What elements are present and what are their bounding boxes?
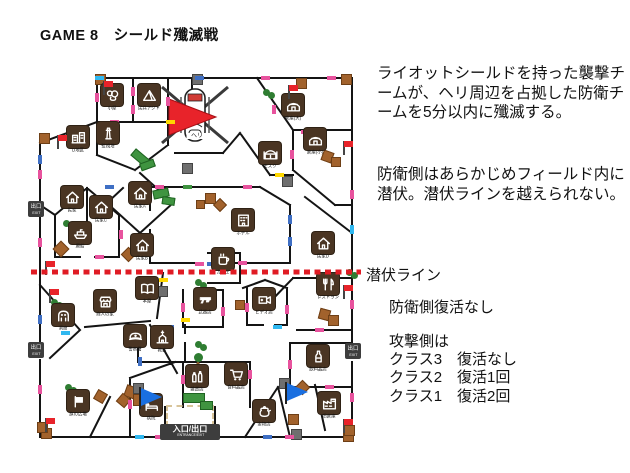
warehouse-icon: [304, 128, 326, 150]
map-icon-label: 民兵アジト: [137, 106, 161, 110]
red-flag-icon: [103, 81, 115, 95]
map-icon-house: 民家A: [118, 182, 162, 212]
map-icon-label: ホテル: [231, 231, 255, 235]
mosque-icon: [259, 142, 281, 164]
red-flag-icon: [343, 141, 355, 155]
red-flag-icon: [45, 261, 57, 275]
wall-marker: [275, 173, 284, 177]
red-flag-icon: [45, 418, 57, 432]
field-map: 小屋民兵アジト監視塔D地区民家民家C民家A倉庫(大)倉庫(小)モスクホテル民家D…: [35, 75, 357, 441]
red-flag-icon: [57, 135, 69, 149]
barrier-icon: [162, 196, 176, 206]
wall-marker: [243, 185, 252, 189]
map-icon-house: 民家B: [120, 234, 164, 264]
shop-icon: [94, 290, 116, 312]
map-icon-label: 雑貨店: [185, 387, 209, 391]
wall-marker: [166, 120, 175, 124]
tent-icon: [138, 84, 160, 106]
factory-icon: [318, 392, 340, 414]
red-flag-icon: [288, 85, 300, 99]
exit-sign: 出口EXIT: [345, 343, 361, 359]
city-icon: [67, 126, 89, 148]
map-icon-label: モスク: [258, 164, 282, 168]
red-flag-icon: [49, 289, 61, 303]
house-icon: [90, 196, 112, 218]
wall-marker: [285, 435, 294, 439]
crate-icon: [328, 315, 339, 326]
blue-pennant-icon: [139, 387, 165, 409]
page-title: GAME 8 シールド殲滅戦: [40, 24, 219, 45]
wall-marker: [38, 238, 42, 247]
map-icon-label: 民家B: [130, 256, 154, 260]
wall-marker: [138, 357, 142, 366]
map-icon-camera: ビデオ店: [242, 288, 286, 318]
map-icon-bottles: 雑貨店: [175, 365, 219, 395]
map-icon-label: 武器店: [193, 310, 217, 314]
map-icon-label: 洞窟: [51, 326, 75, 330]
bottle-icon: [307, 345, 329, 367]
wall-marker: [38, 170, 42, 179]
attack-rule-class2: クラス2 復活1回: [389, 369, 517, 387]
junction-block: [39, 133, 50, 144]
map-icon-label: ビデオ店: [252, 310, 276, 314]
map-icon-label: 教会: [150, 348, 174, 352]
map-icon-label: 小屋: [100, 106, 124, 110]
flagsq-icon: [67, 390, 89, 412]
map-icon-flagsq: 旗の広場: [56, 390, 100, 420]
map-icon-label: カフェ: [211, 270, 235, 274]
wall-marker: [38, 155, 42, 164]
map-icon-hotel: ホテル: [221, 209, 265, 239]
wall-marker: [181, 318, 190, 322]
map-icon-cart: 食料品店: [214, 363, 258, 393]
map-icon-label: 商人の家: [93, 312, 117, 316]
wall-marker: [95, 76, 104, 80]
wall-marker: [95, 255, 104, 259]
wall-marker: [195, 76, 204, 80]
map-icon-label: 飲料品店: [306, 367, 330, 371]
wall-marker: [315, 328, 324, 332]
blue-pennant-icon: [285, 382, 311, 404]
map-icon-teapot: 金物店: [242, 400, 286, 430]
ship-icon: [69, 222, 91, 244]
map-icon-label: 民家D: [311, 254, 335, 258]
wall-marker: [325, 385, 334, 389]
map-items-layer: 小屋民兵アジト監視塔D地区民家民家C民家A倉庫(大)倉庫(小)モスクホテル民家D…: [35, 75, 357, 441]
map-icon-mosque: モスク: [248, 142, 292, 172]
cart-icon: [225, 363, 247, 385]
wall-marker: [350, 300, 354, 309]
wall-marker: [350, 225, 354, 234]
attack-rule-class1: クラス1 復活2回: [389, 388, 517, 406]
crate-icon: [196, 200, 205, 209]
crate-icon: [331, 157, 341, 167]
house-icon: [312, 232, 334, 254]
tower-icon: [97, 122, 119, 144]
map-icon-label: 旗の広場: [66, 412, 90, 416]
map-icon-gun: 武器店: [183, 288, 227, 318]
map-icon-label: 本屋: [135, 299, 159, 303]
wall-marker: [327, 76, 336, 80]
wall-marker: [288, 237, 292, 246]
map-icon-label: 倉庫(小): [303, 150, 327, 154]
entrance-sign: 入口/出口ENTRANCE/EXIT: [160, 424, 220, 440]
barrier-icon: [200, 401, 213, 410]
church-icon: [151, 326, 173, 348]
map-icon-label: 旧倉庫: [317, 414, 341, 418]
crate-icon: [288, 414, 299, 425]
wall-marker: [288, 360, 292, 369]
wall-marker: [263, 435, 272, 439]
house-icon: [129, 182, 151, 204]
slide-page: { "title": "GAME 8 シールド殲滅戦", "rules": { …: [0, 0, 630, 473]
wall-marker: [288, 215, 292, 224]
map-icon-shop: 商人の家: [83, 290, 127, 320]
map-icon-label: 病院: [139, 416, 163, 420]
cup-icon: [212, 248, 234, 270]
wall-marker: [261, 76, 270, 80]
cutlery-icon: [317, 273, 339, 295]
map-icon-label: 廃船: [68, 244, 92, 248]
attack-rules-header: 攻撃側は: [389, 333, 517, 351]
rule-paragraph-defense: 防衛側はあらかじめフィールド内に潜伏。潜伏ラインを越えられない。: [377, 165, 629, 204]
wall-marker: [273, 325, 282, 329]
map-icon-ghost: 洞窟: [41, 304, 85, 334]
junction-block: [341, 74, 352, 85]
rule-paragraph-objective: ライオットシールドを持った襲撃チームが、ヘリ周辺を占拠した防衛チームを5分以内に…: [377, 64, 629, 123]
teapot-icon: [253, 400, 275, 422]
map-icon-label: 民家A: [128, 204, 152, 208]
map-icon-label: 食料品店: [224, 385, 248, 389]
wall-marker: [183, 185, 192, 189]
map-icon-church: 教会: [140, 326, 184, 356]
heli-label: ヘリ: [187, 133, 208, 139]
exit-sign: 出口EXIT: [28, 201, 44, 217]
map-icon-bottle: 飲料品店: [296, 345, 340, 375]
map-icon-house: 民家D: [301, 232, 345, 262]
book-icon: [136, 277, 158, 299]
red-flag-icon: [343, 285, 355, 299]
bottles-icon: [186, 365, 208, 387]
map-icon-ship: 廃船: [58, 222, 102, 252]
attack-rule-class3: クラス3 復活なし: [389, 351, 517, 369]
map-icon-book: 本屋: [125, 277, 169, 307]
map-icon-label: 倉庫(大): [281, 116, 305, 120]
map-icon-factory: 旧倉庫: [307, 392, 351, 422]
camera-icon: [253, 288, 275, 310]
map-icon-cup: カフェ: [201, 248, 245, 278]
hide-line-label: 潜伏ライン: [366, 264, 441, 285]
attack-rules-block: 攻撃側は クラス3 復活なし クラス2 復活1回 クラス1 復活2回: [389, 333, 517, 406]
junction-block: [182, 163, 193, 174]
wall-marker: [38, 385, 42, 394]
map-icon-label: D地区: [66, 148, 90, 152]
map-icon-label: 金物店: [252, 422, 276, 426]
defense-revival-rule: 防衛側復活なし: [389, 296, 494, 317]
map-icon-tent: 民兵アジト: [127, 84, 171, 114]
hotel-icon: [232, 209, 254, 231]
exit-sign: 出口EXIT: [28, 342, 44, 358]
map-icon-warehouse: 倉庫(小): [293, 128, 337, 158]
house-icon: [131, 234, 153, 256]
gun-icon: [194, 288, 216, 310]
junction-block: [282, 176, 293, 187]
wall-marker: [105, 185, 114, 189]
ghost-icon: [52, 304, 74, 326]
wall-marker: [350, 190, 354, 199]
red-flag-icon: [343, 419, 355, 433]
map-icon-label: レストラン: [316, 295, 340, 299]
wall-marker: [135, 435, 144, 439]
